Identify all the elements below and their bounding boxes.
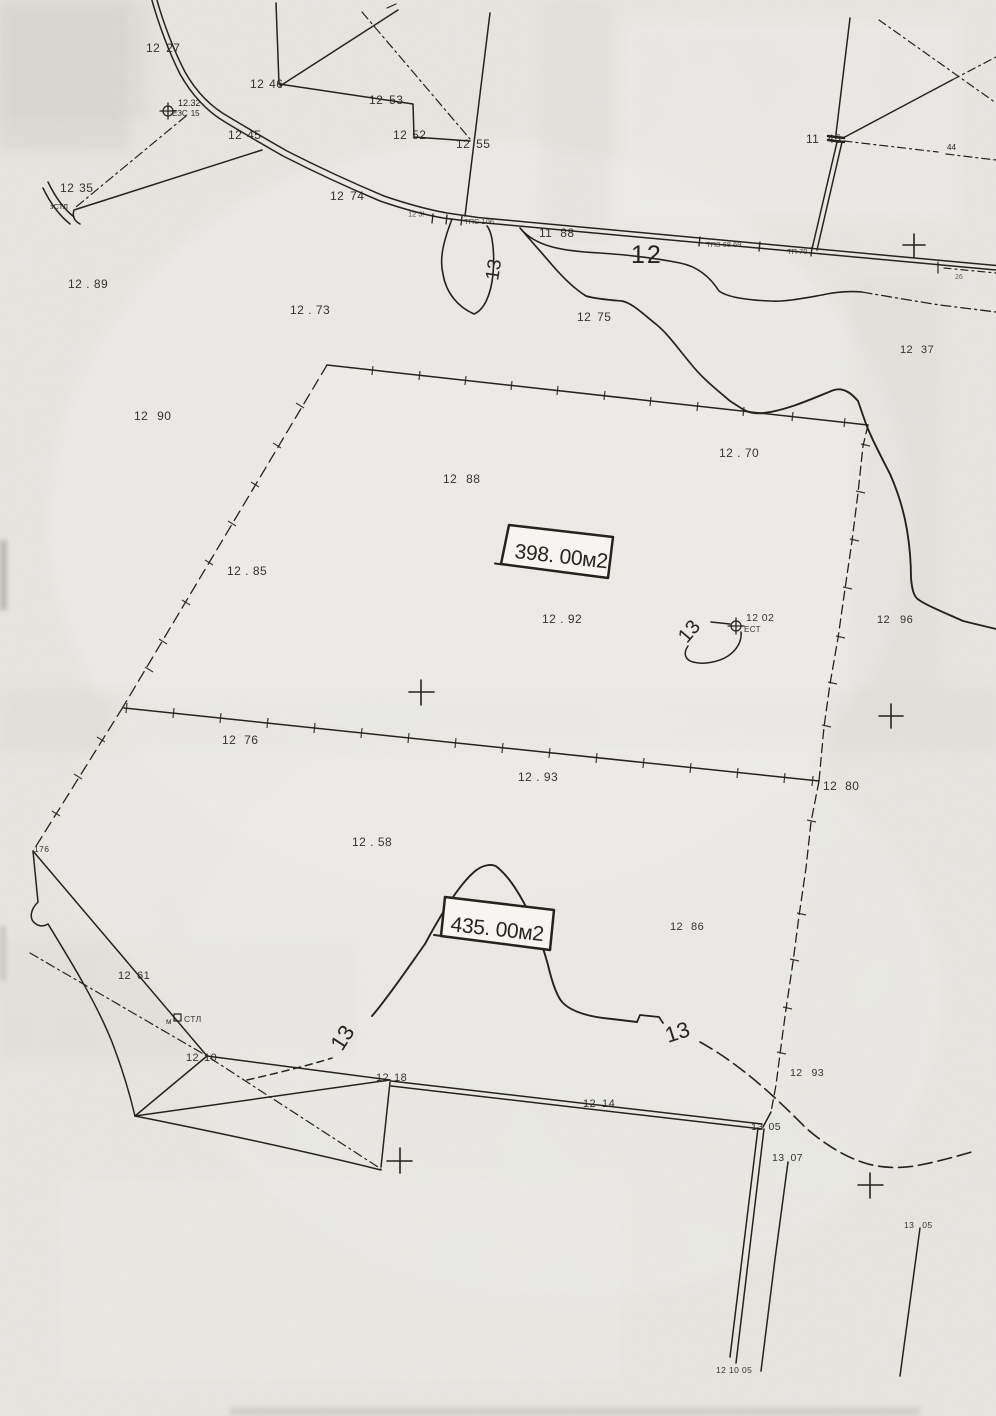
svg-text:ТПЗ 68 69: ТПЗ 68 69 (706, 240, 741, 249)
svg-text:зСТЛ: зСТЛ (50, 202, 68, 211)
svg-text:44: 44 (947, 143, 956, 152)
svg-text:12.73: 12.73 (290, 303, 330, 317)
svg-text:СТЛ: СТЛ (184, 1014, 202, 1024)
svg-text:176: 176 (34, 844, 49, 854)
svg-text:12 3!: 12 3! (408, 210, 425, 219)
svg-text:12: 12 (631, 241, 663, 269)
svg-text:12.92: 12.92 (542, 612, 582, 626)
svg-text:ТПС 106: ТПС 106 (464, 217, 494, 226)
svg-text:12.85: 12.85 (227, 564, 267, 578)
svg-text:ЕСТ: ЕСТ (744, 625, 761, 634)
svg-text:26: 26 (955, 274, 963, 281)
svg-text:12.93: 12.93 (518, 770, 558, 784)
svg-text:12.58: 12.58 (352, 835, 392, 849)
svg-text:13: 13 (482, 258, 506, 282)
svg-text:12.89: 12.89 (68, 277, 108, 291)
svg-text:12 02: 12 02 (746, 612, 774, 624)
svg-text:ТП 70: ТП 70 (787, 247, 807, 256)
svg-text:12.32: 12.32 (178, 98, 201, 108)
svg-text:ЕЗС15: ЕЗС15 (172, 109, 200, 118)
svg-text:12 10 05: 12 10 05 (716, 1365, 752, 1375)
svg-text:м: м (166, 1017, 172, 1026)
svg-text:12.70: 12.70 (719, 446, 759, 460)
